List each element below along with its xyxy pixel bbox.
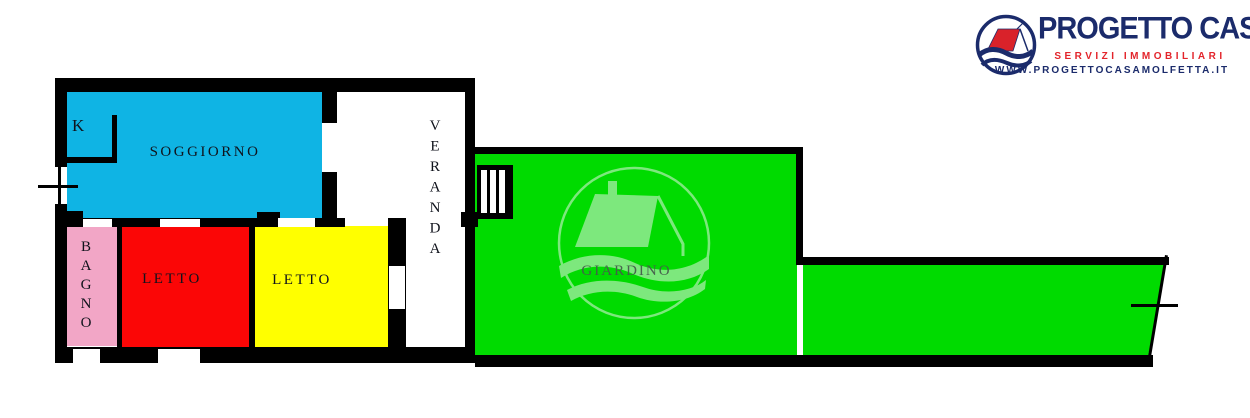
window-cross-marker [38,185,78,188]
wall [55,78,475,92]
kitchen-label: K [72,116,84,136]
wall [57,211,83,226]
letto-2-label: LETTO [252,272,352,289]
garden-watermark-logo [555,164,713,322]
door-opening [83,219,112,227]
window-opening [322,123,337,172]
stairs-icon [477,165,513,219]
garden-area-right [803,265,1166,357]
door-opening [278,218,315,227]
garden-wall [796,147,803,265]
garden-wall [475,355,1153,367]
floor-plan-page: K SOGGIORNO BAGNO LETTO LETTO VERANDA GI… [0,0,1250,418]
veranda-label: VERANDA [426,118,443,253]
stair-tread [496,170,499,213]
agency-logo: PROGETTO CASA SERVIZI IMMOBILIARI WWW.PR… [974,10,1250,82]
wall [461,212,478,227]
wall [55,347,475,363]
agency-website-text: WWW.PROGETTOCASAMOLFETTA.IT [974,65,1250,76]
soggiorno-label: SOGGIORNO [90,144,320,161]
agency-brand-text: PROGETTO CASA [1038,11,1250,47]
garden-wall [796,257,1169,265]
giardino-label: GIARDINO [564,263,689,280]
window-opening [158,349,200,363]
garden-wall [475,147,803,154]
agency-tagline-text: SERVIZI IMMOBILIARI [1032,51,1248,62]
wall [257,212,280,227]
bagno-label: BAGNO [77,239,94,351]
stair-tread [487,170,490,213]
window-opening [73,349,100,363]
door-opening [160,219,200,227]
letto-1-label: LETTO [122,271,222,288]
door-opening [389,266,405,309]
boundary-cross-marker [1131,304,1178,307]
